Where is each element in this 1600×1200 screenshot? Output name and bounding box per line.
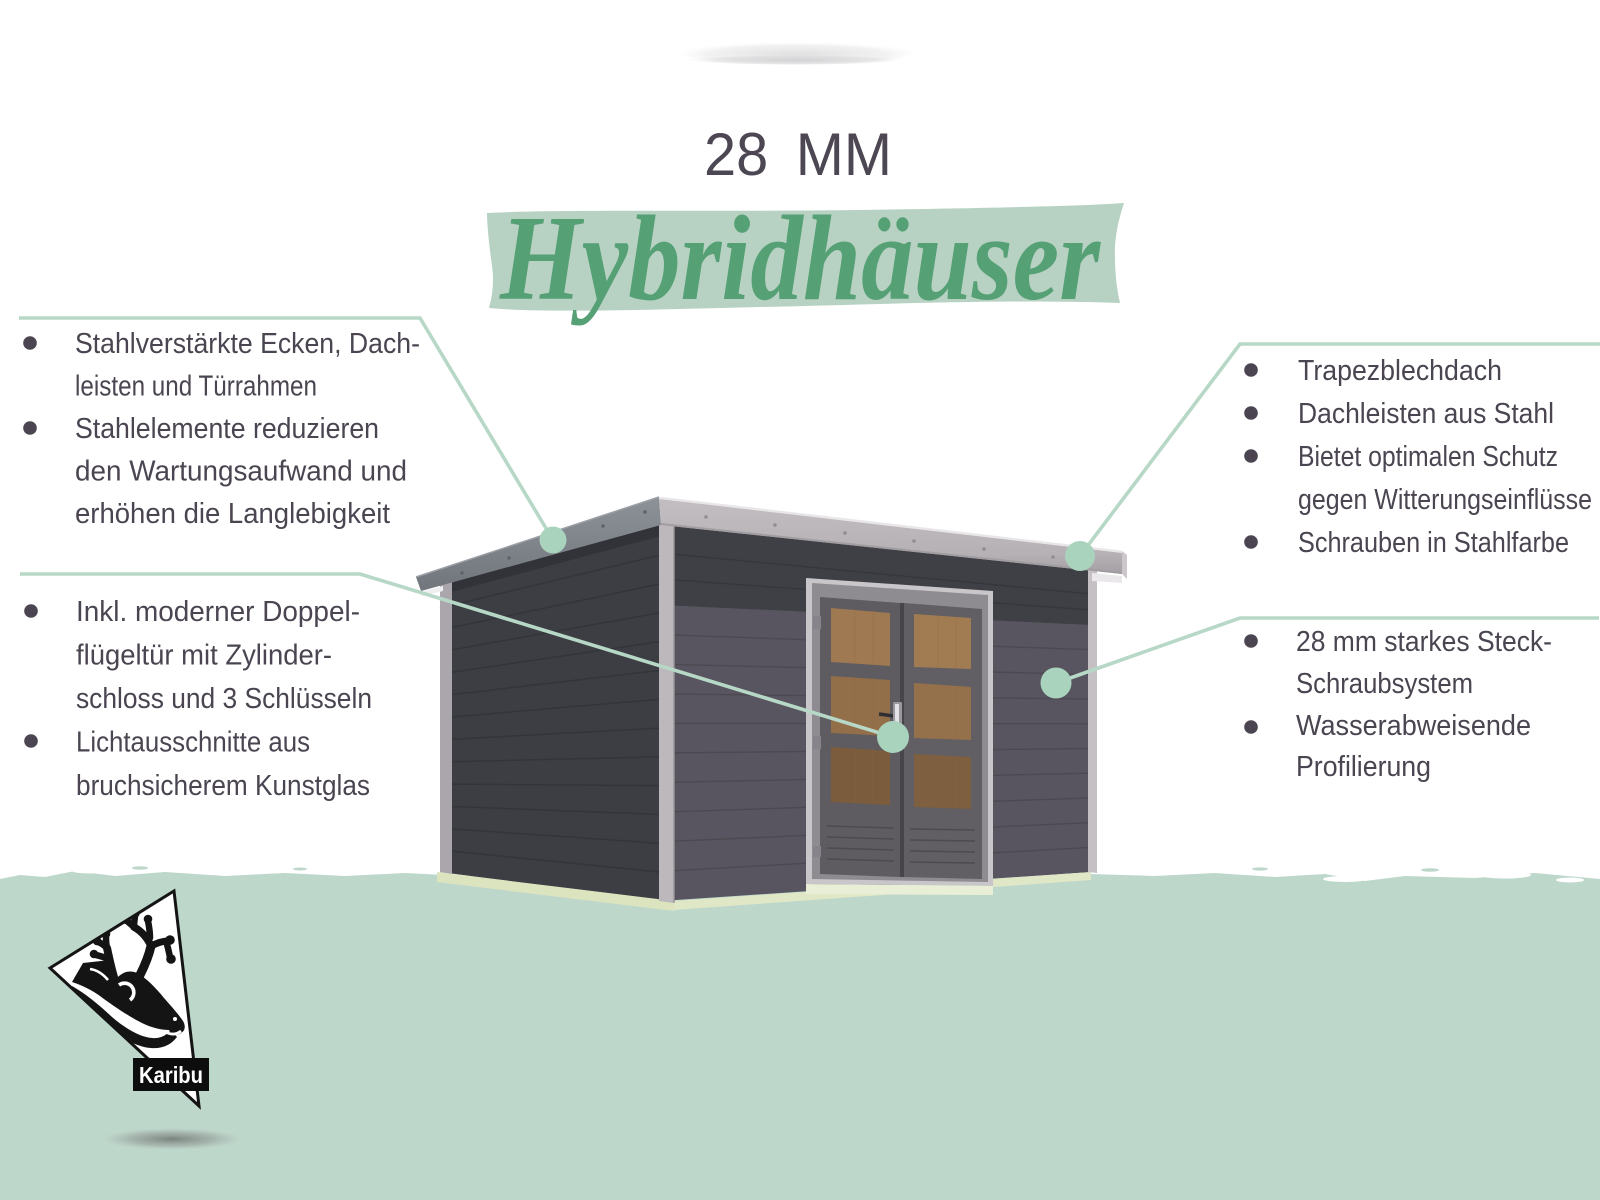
svg-text:Stahlelemente reduzieren: Stahlelemente reduzieren <box>75 413 379 445</box>
svg-text:28 MM: 28 MM <box>704 121 892 188</box>
svg-text:Wasserabweisende: Wasserabweisende <box>1296 710 1531 742</box>
svg-text:28 mm starkes Steck-: 28 mm starkes Steck- <box>1296 626 1552 658</box>
svg-text:flügeltür mit Zylinder-: flügeltür mit Zylinder- <box>76 640 332 672</box>
svg-text:Schraubsystem: Schraubsystem <box>1296 668 1473 700</box>
svg-text:Bietet optimalen Schutz: Bietet optimalen Schutz <box>1298 441 1558 473</box>
svg-text:Lichtausschnitte aus: Lichtausschnitte aus <box>76 727 310 759</box>
svg-text:Stahlverstärkte Ecken, Dach-: Stahlverstärkte Ecken, Dach- <box>75 328 420 360</box>
svg-text:Karibu: Karibu <box>139 1062 203 1088</box>
svg-text:den Wartungsaufwand und: den Wartungsaufwand und <box>75 456 407 488</box>
svg-text:Schrauben in Stahlfarbe: Schrauben in Stahlfarbe <box>1298 527 1569 559</box>
svg-text:Hybridhäuser: Hybridhäuser <box>499 191 1101 326</box>
svg-text:Dachleisten aus Stahl: Dachleisten aus Stahl <box>1298 398 1554 430</box>
svg-text:Profilierung: Profilierung <box>1296 751 1431 783</box>
svg-text:leisten und Türrahmen: leisten und Türrahmen <box>75 371 317 403</box>
svg-text:erhöhen die Langlebigkeit: erhöhen die Langlebigkeit <box>75 498 390 530</box>
svg-text:gegen Witterungseinflüsse: gegen Witterungseinflüsse <box>1298 484 1592 516</box>
svg-text:bruchsicherem Kunstglas: bruchsicherem Kunstglas <box>76 770 370 802</box>
svg-text:schloss und 3 Schlüsseln: schloss und 3 Schlüsseln <box>76 683 372 715</box>
svg-text:Trapezblechdach: Trapezblechdach <box>1298 355 1502 387</box>
svg-text:Inkl. moderner Doppel-: Inkl. moderner Doppel- <box>76 596 360 628</box>
